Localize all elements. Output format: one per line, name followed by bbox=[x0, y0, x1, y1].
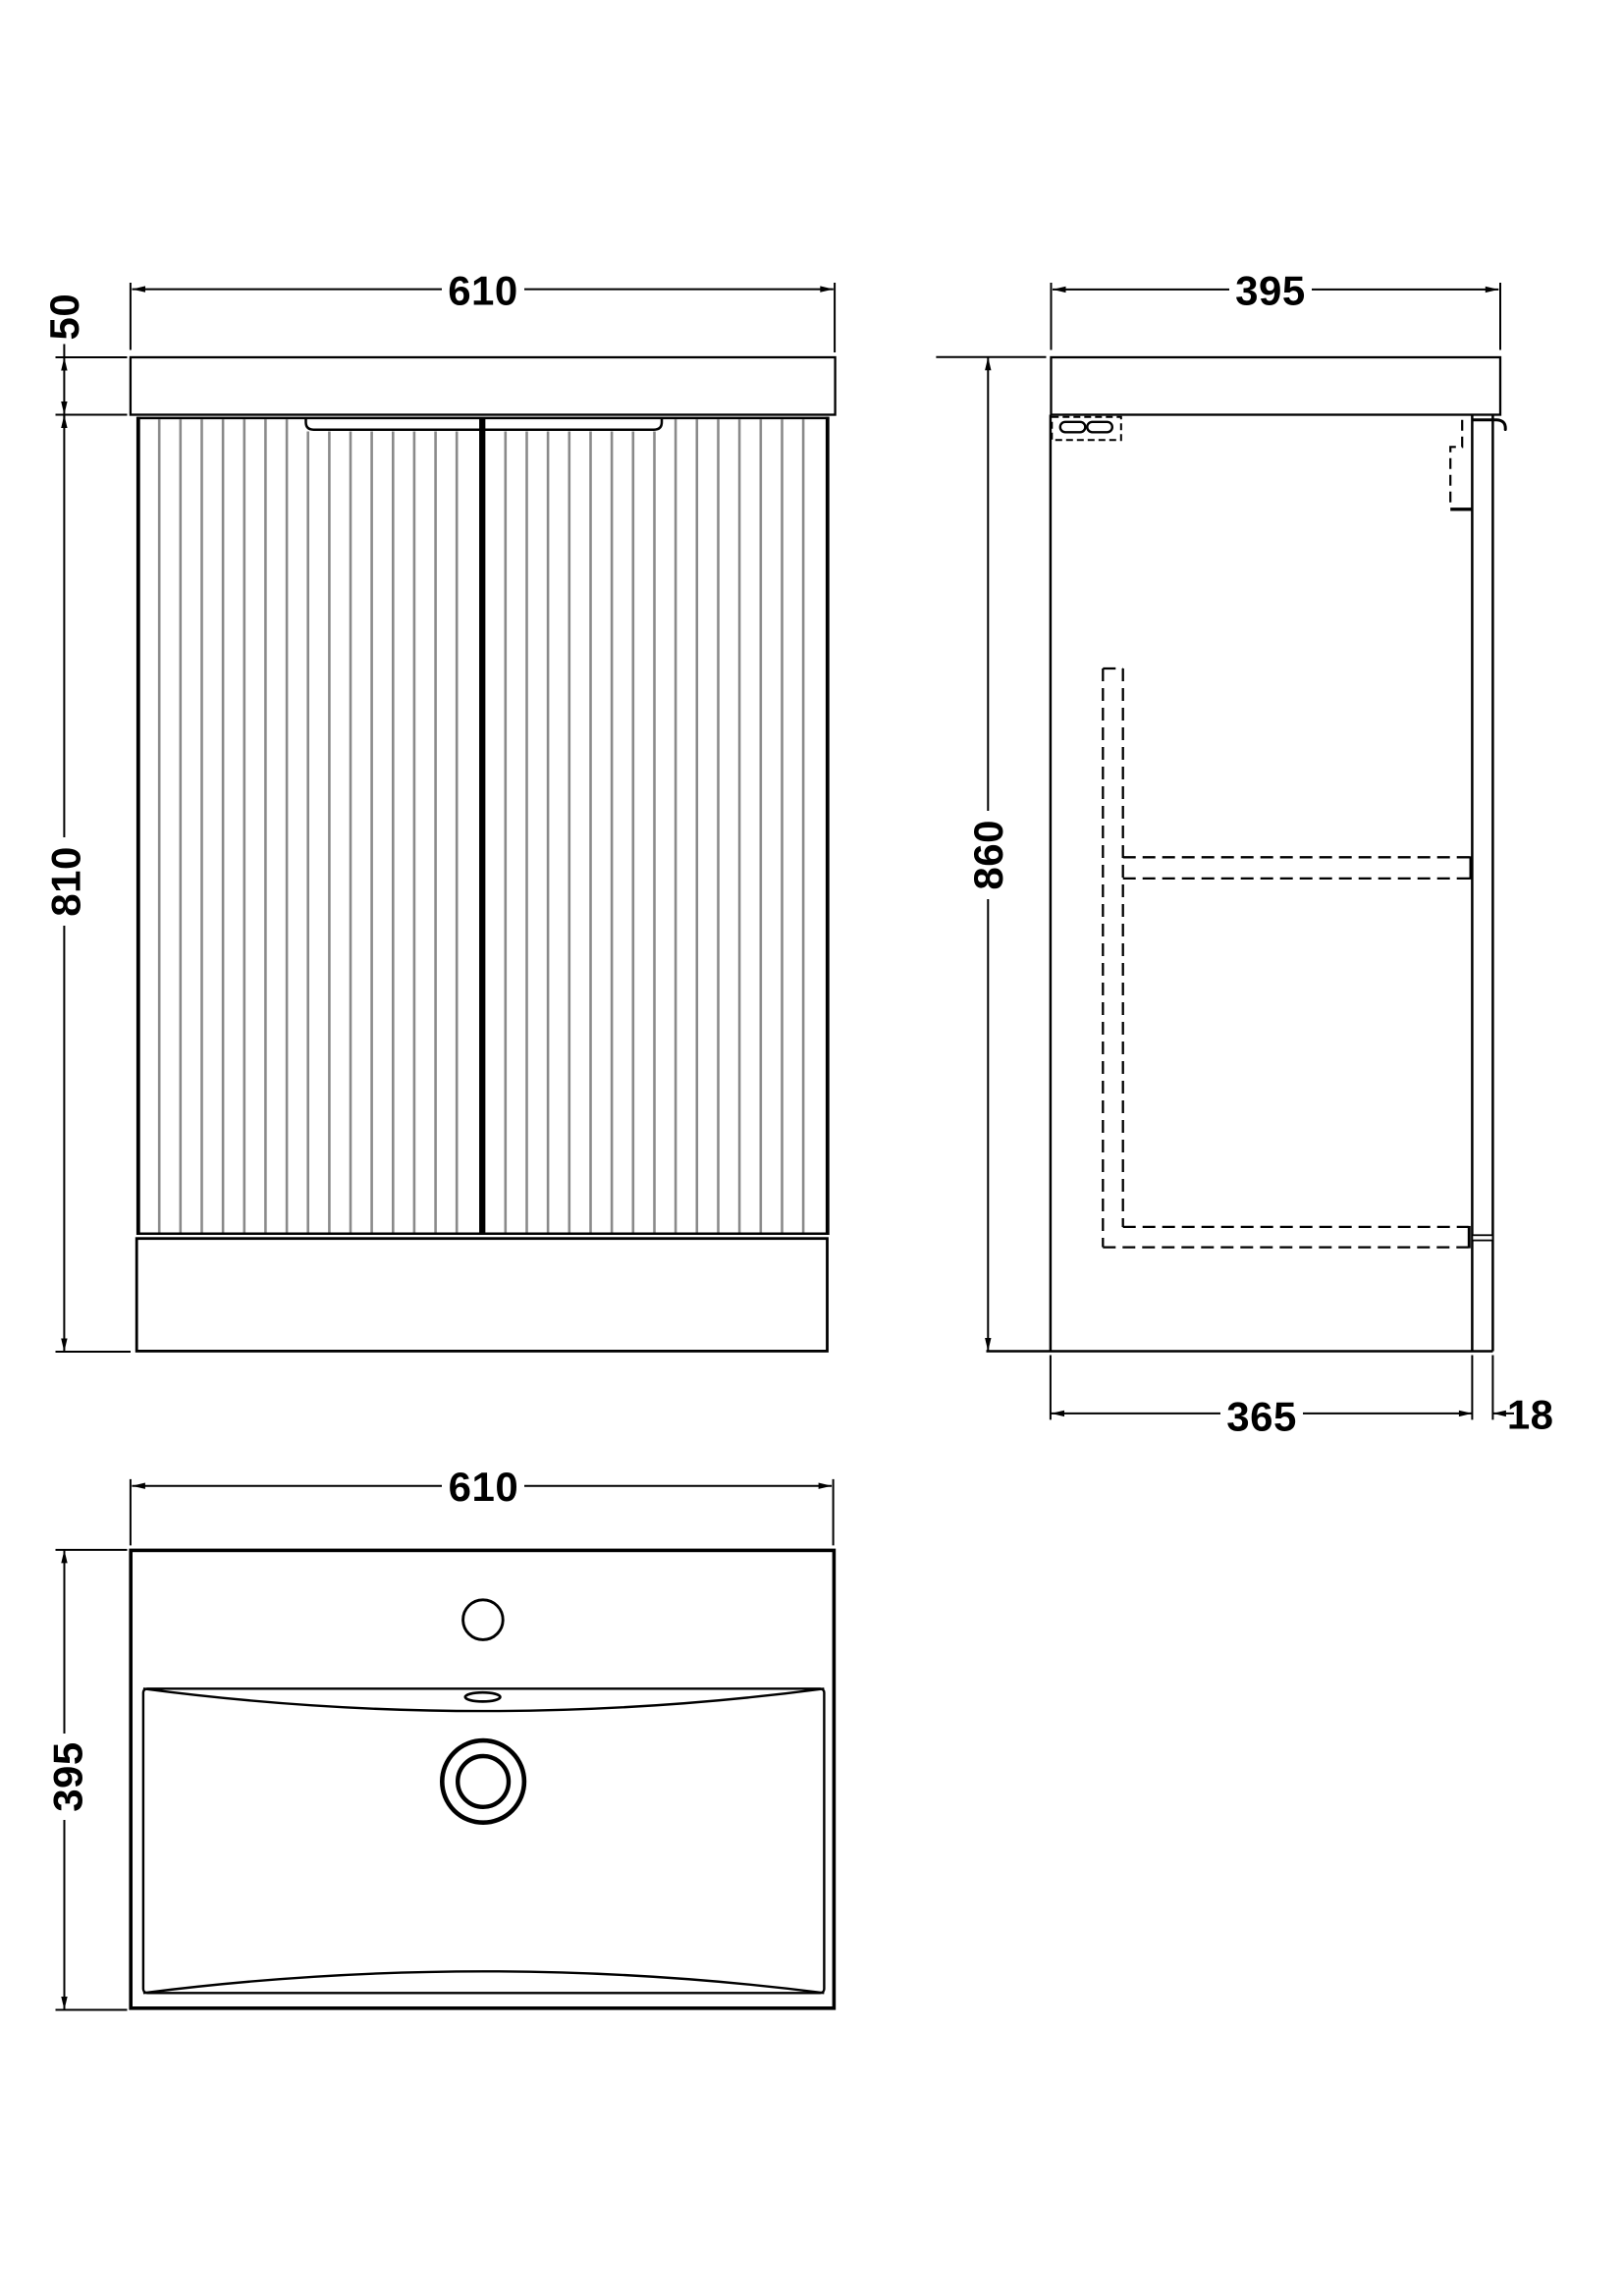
svg-text:395: 395 bbox=[45, 1741, 91, 1812]
svg-text:395: 395 bbox=[1235, 268, 1306, 314]
svg-text:610: 610 bbox=[448, 268, 518, 314]
svg-text:810: 810 bbox=[42, 846, 88, 917]
svg-text:860: 860 bbox=[965, 820, 1011, 890]
svg-text:365: 365 bbox=[1226, 1394, 1297, 1440]
svg-text:18: 18 bbox=[1507, 1392, 1554, 1438]
svg-text:610: 610 bbox=[449, 1464, 519, 1510]
svg-text:50: 50 bbox=[41, 294, 87, 341]
